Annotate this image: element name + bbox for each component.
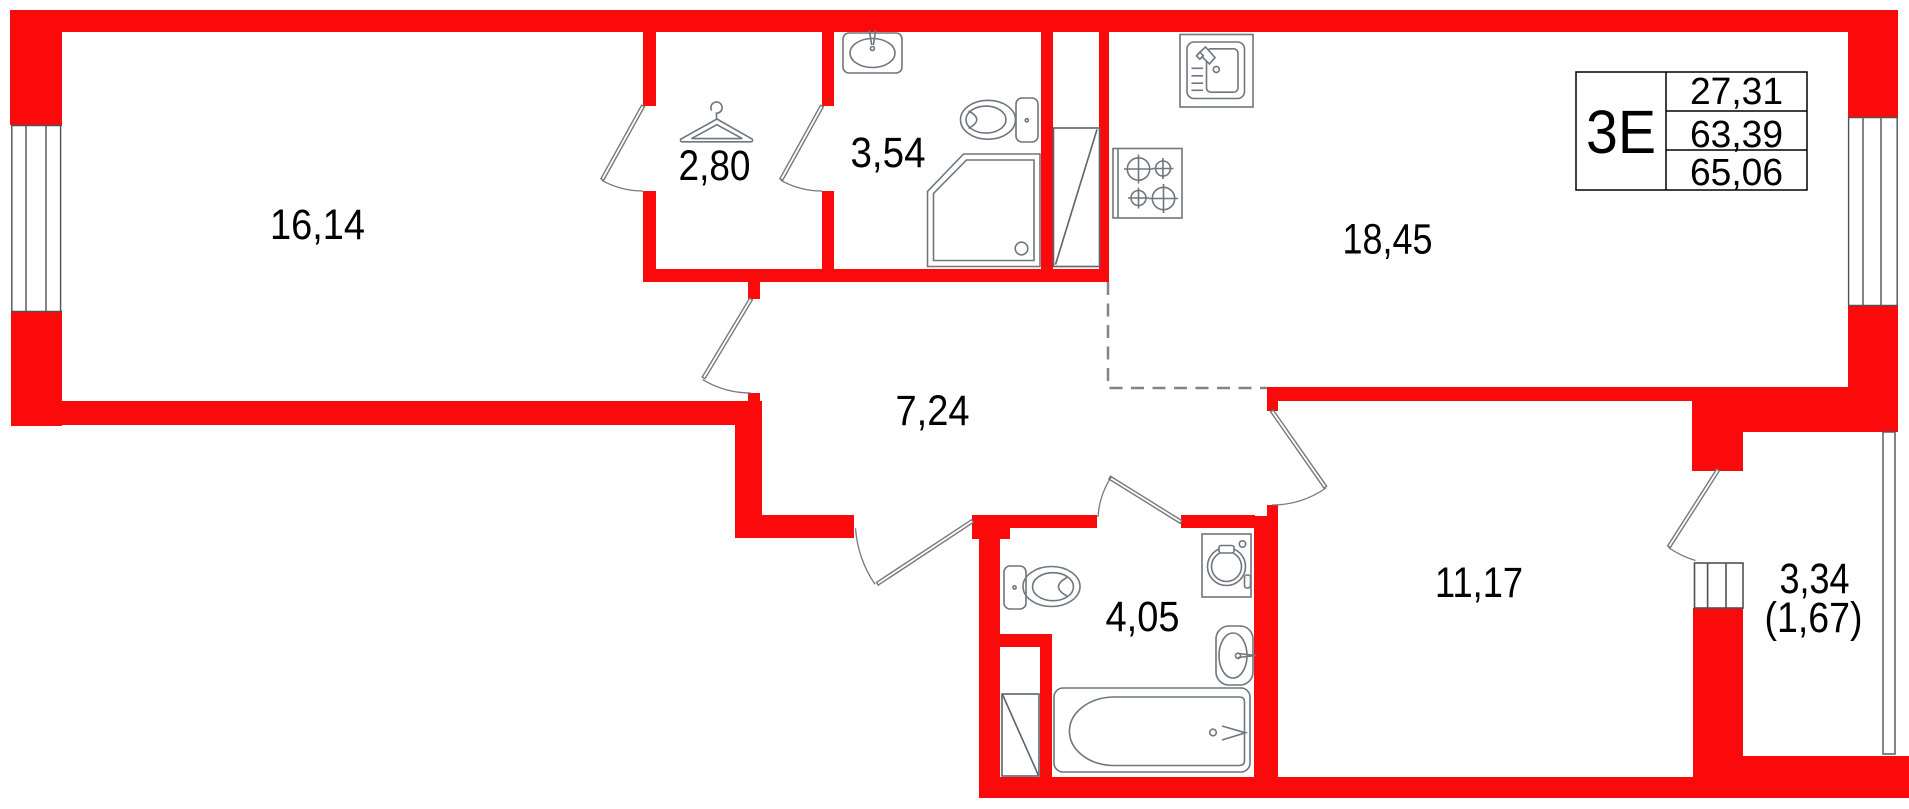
svg-text:18,45: 18,45 [1343, 217, 1433, 264]
svg-text:4,05: 4,05 [1106, 594, 1180, 641]
svg-text:65,06: 65,06 [1690, 152, 1783, 194]
svg-text:2,80: 2,80 [679, 143, 751, 190]
svg-text:(1,67): (1,67) [1765, 595, 1863, 642]
svg-text:3Е: 3Е [1586, 98, 1656, 166]
svg-text:3,54: 3,54 [851, 130, 926, 177]
svg-text:7,24: 7,24 [896, 388, 970, 435]
svg-text:63,39: 63,39 [1690, 114, 1783, 156]
svg-text:27,31: 27,31 [1690, 71, 1783, 113]
svg-text:16,14: 16,14 [270, 202, 365, 249]
svg-text:11,17: 11,17 [1435, 560, 1523, 607]
